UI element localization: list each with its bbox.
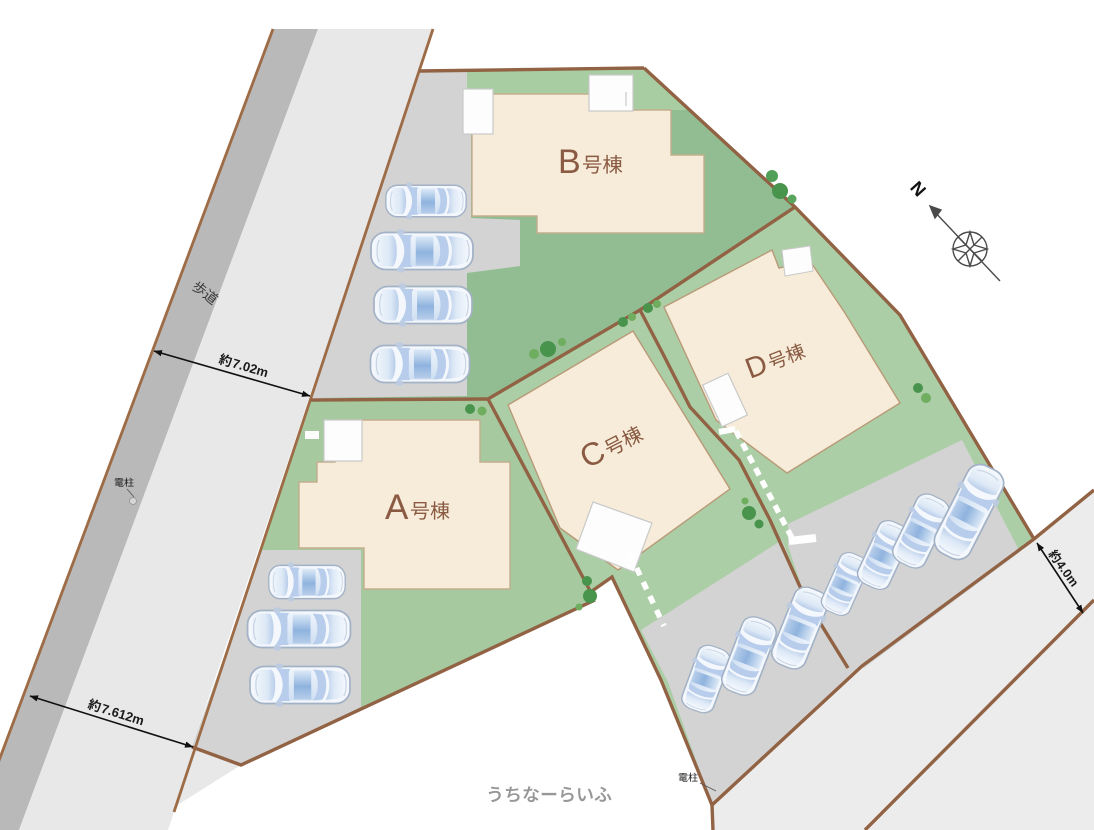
svg-text:A: A: [385, 488, 409, 527]
svg-text:B: B: [558, 143, 581, 181]
